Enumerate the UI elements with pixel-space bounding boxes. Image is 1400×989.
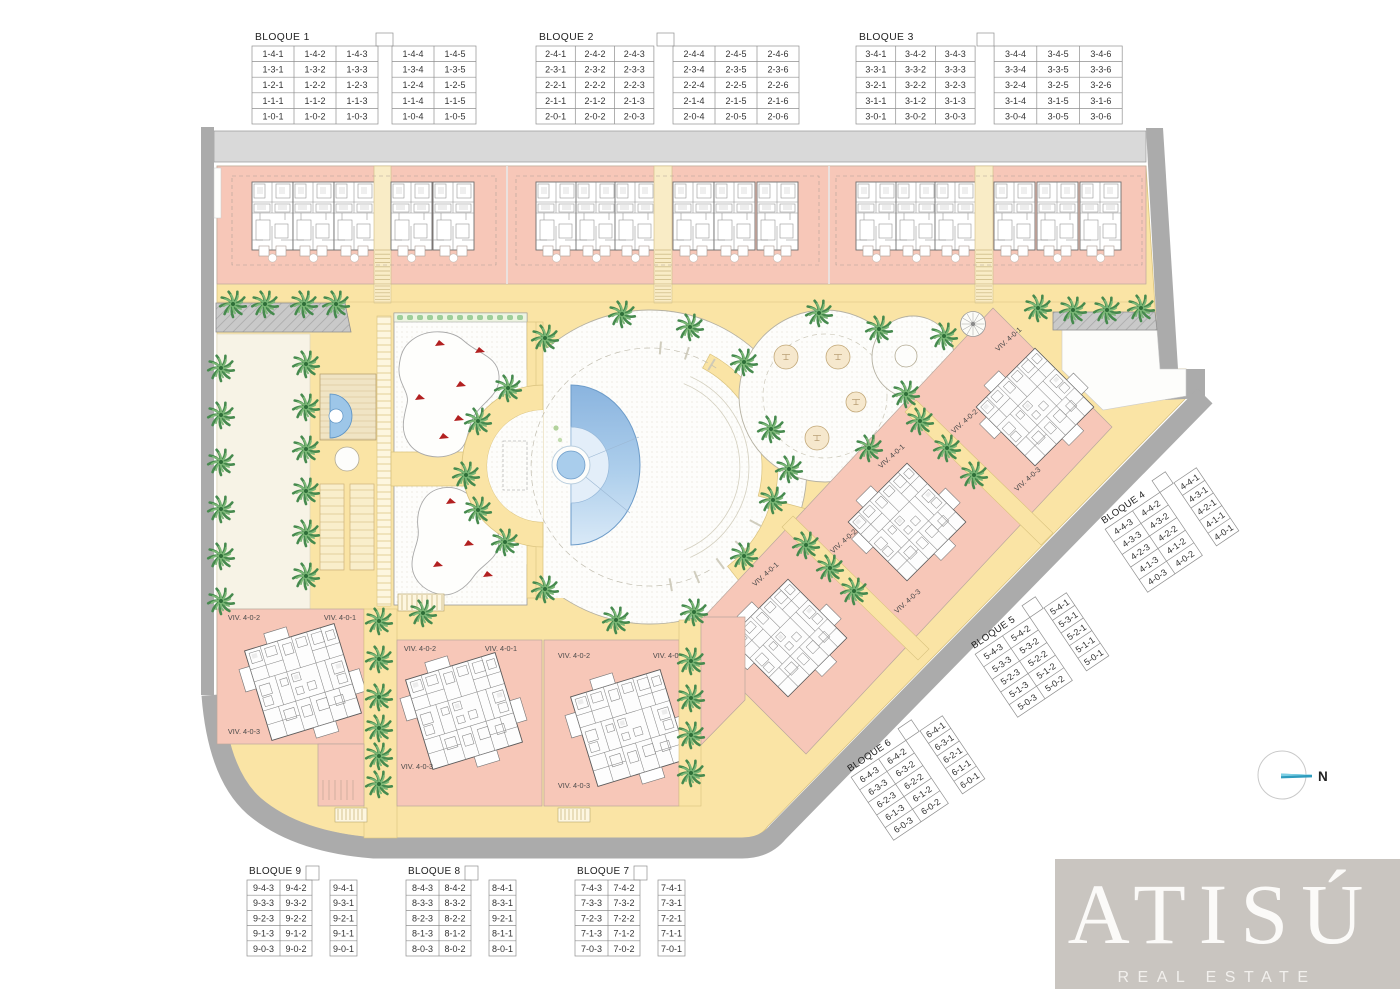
- svg-text:3-2-6: 3-2-6: [1090, 80, 1111, 90]
- svg-text:3-3-4: 3-3-4: [1005, 65, 1026, 75]
- svg-text:1-2-4: 1-2-4: [402, 80, 423, 90]
- svg-text:3-4-1: 3-4-1: [865, 49, 886, 59]
- svg-text:7-1-1: 7-1-1: [661, 929, 682, 939]
- svg-text:9-4-2: 9-4-2: [285, 883, 306, 893]
- svg-text:9-1-3: 9-1-3: [253, 929, 274, 939]
- svg-text:7-2-1: 7-2-1: [661, 913, 682, 923]
- svg-text:N: N: [1318, 769, 1328, 784]
- svg-text:1-2-3: 1-2-3: [346, 80, 367, 90]
- svg-text:9-4-3: 9-4-3: [253, 883, 274, 893]
- svg-text:3-4-2: 3-4-2: [905, 49, 926, 59]
- svg-text:8-3-1: 8-3-1: [492, 898, 513, 908]
- svg-text:VIV. 4-0-3: VIV. 4-0-3: [558, 781, 590, 790]
- svg-text:2-0-1: 2-0-1: [545, 111, 566, 121]
- svg-text:7-3-1: 7-3-1: [661, 898, 682, 908]
- svg-text:1-3-2: 1-3-2: [304, 65, 325, 75]
- svg-text:2-4-2: 2-4-2: [584, 49, 605, 59]
- svg-text:8-0-3: 8-0-3: [412, 944, 433, 954]
- svg-text:REAL ESTATE: REAL ESTATE: [1117, 969, 1316, 986]
- svg-text:1-0-2: 1-0-2: [304, 111, 325, 121]
- svg-text:BLOQUE 8: BLOQUE 8: [408, 866, 461, 877]
- svg-text:3-1-6: 3-1-6: [1090, 96, 1111, 106]
- svg-text:1-1-4: 1-1-4: [402, 96, 423, 106]
- svg-text:7-3-3: 7-3-3: [581, 898, 602, 908]
- svg-text:3-0-6: 3-0-6: [1090, 111, 1111, 121]
- svg-text:2-4-6: 2-4-6: [767, 49, 788, 59]
- svg-text:3-3-3: 3-3-3: [945, 65, 966, 75]
- svg-text:1-1-5: 1-1-5: [444, 96, 465, 106]
- svg-text:9-0-2: 9-0-2: [285, 944, 306, 954]
- svg-text:3-4-4: 3-4-4: [1005, 49, 1026, 59]
- svg-text:9-1-1: 9-1-1: [333, 929, 354, 939]
- svg-text:3-2-5: 3-2-5: [1048, 80, 1069, 90]
- svg-text:9-3-3: 9-3-3: [253, 898, 274, 908]
- svg-text:1-2-5: 1-2-5: [444, 80, 465, 90]
- svg-text:1-3-5: 1-3-5: [444, 65, 465, 75]
- svg-text:BLOQUE 9: BLOQUE 9: [249, 866, 302, 877]
- svg-text:2-1-4: 2-1-4: [683, 96, 704, 106]
- svg-text:2-3-4: 2-3-4: [683, 65, 704, 75]
- svg-text:3-0-5: 3-0-5: [1048, 111, 1069, 121]
- svg-text:8-2-2: 8-2-2: [444, 913, 465, 923]
- svg-text:1-0-1: 1-0-1: [262, 111, 283, 121]
- svg-text:3-3-6: 3-3-6: [1090, 65, 1111, 75]
- svg-text:8-1-3: 8-1-3: [412, 929, 433, 939]
- svg-text:2-2-1: 2-2-1: [545, 80, 566, 90]
- svg-text:2-4-5: 2-4-5: [725, 49, 746, 59]
- svg-text:BLOQUE 3: BLOQUE 3: [859, 32, 914, 43]
- svg-text:2-1-6: 2-1-6: [767, 96, 788, 106]
- svg-text:7-1-3: 7-1-3: [581, 929, 602, 939]
- svg-text:BLOQUE 2: BLOQUE 2: [539, 32, 594, 43]
- svg-text:1-4-5: 1-4-5: [444, 49, 465, 59]
- svg-text:2-3-1: 2-3-1: [545, 65, 566, 75]
- svg-text:3-4-3: 3-4-3: [945, 49, 966, 59]
- svg-text:2-1-5: 2-1-5: [725, 96, 746, 106]
- svg-text:3-1-5: 3-1-5: [1048, 96, 1069, 106]
- svg-text:2-2-4: 2-2-4: [683, 80, 704, 90]
- svg-text:3-3-2: 3-3-2: [905, 65, 926, 75]
- svg-text:3-1-3: 3-1-3: [945, 96, 966, 106]
- svg-text:1-3-3: 1-3-3: [346, 65, 367, 75]
- svg-text:3-0-1: 3-0-1: [865, 111, 886, 121]
- svg-text:8-1-1: 8-1-1: [492, 929, 513, 939]
- svg-text:2-3-6: 2-3-6: [767, 65, 788, 75]
- svg-text:7-0-2: 7-0-2: [613, 944, 634, 954]
- svg-text:3-4-5: 3-4-5: [1048, 49, 1069, 59]
- svg-text:BLOQUE 7: BLOQUE 7: [577, 866, 630, 877]
- svg-text:2-3-3: 2-3-3: [624, 65, 645, 75]
- svg-text:2-0-4: 2-0-4: [683, 111, 704, 121]
- svg-text:9-3-1: 9-3-1: [333, 898, 354, 908]
- svg-text:VIV. 4-0-1: VIV. 4-0-1: [324, 613, 356, 622]
- svg-text:8-3-3: 8-3-3: [412, 898, 433, 908]
- svg-text:9-2-3: 9-2-3: [253, 913, 274, 923]
- svg-text:3-2-2: 3-2-2: [905, 80, 926, 90]
- svg-text:VIV. 4-0-2: VIV. 4-0-2: [228, 613, 260, 622]
- svg-text:2-2-5: 2-2-5: [725, 80, 746, 90]
- svg-text:2-0-3: 2-0-3: [624, 111, 645, 121]
- svg-text:9-4-1: 9-4-1: [333, 883, 354, 893]
- svg-text:3-2-4: 3-2-4: [1005, 80, 1026, 90]
- svg-text:3-3-5: 3-3-5: [1048, 65, 1069, 75]
- svg-text:1-0-3: 1-0-3: [346, 111, 367, 121]
- svg-text:9-0-1: 9-0-1: [333, 944, 354, 954]
- svg-text:3-4-6: 3-4-6: [1090, 49, 1111, 59]
- svg-text:ATISÚ: ATISÚ: [1068, 866, 1377, 962]
- svg-text:2-2-2: 2-2-2: [584, 80, 605, 90]
- svg-text:3-0-2: 3-0-2: [905, 111, 926, 121]
- svg-text:8-4-2: 8-4-2: [444, 883, 465, 893]
- svg-text:7-2-2: 7-2-2: [613, 913, 634, 923]
- svg-text:1-1-3: 1-1-3: [346, 96, 367, 106]
- svg-text:8-0-2: 8-0-2: [444, 944, 465, 954]
- svg-text:9-2-2: 9-2-2: [285, 913, 306, 923]
- svg-text:3-0-4: 3-0-4: [1005, 111, 1026, 121]
- svg-text:3-1-1: 3-1-1: [865, 96, 886, 106]
- svg-text:BLOQUE 1: BLOQUE 1: [255, 32, 310, 43]
- svg-text:2-0-2: 2-0-2: [584, 111, 605, 121]
- svg-text:1-4-4: 1-4-4: [402, 49, 423, 59]
- svg-text:8-3-2: 8-3-2: [444, 898, 465, 908]
- svg-text:3-1-4: 3-1-4: [1005, 96, 1026, 106]
- svg-text:3-1-2: 3-1-2: [905, 96, 926, 106]
- svg-text:8-0-1: 8-0-1: [492, 944, 513, 954]
- svg-text:7-0-1: 7-0-1: [661, 944, 682, 954]
- svg-text:3-2-1: 3-2-1: [865, 80, 886, 90]
- svg-text:9-2-1: 9-2-1: [492, 913, 513, 923]
- svg-text:2-1-1: 2-1-1: [545, 96, 566, 106]
- svg-text:7-4-3: 7-4-3: [581, 883, 602, 893]
- svg-text:2-4-3: 2-4-3: [624, 49, 645, 59]
- svg-text:9-0-3: 9-0-3: [253, 944, 274, 954]
- svg-text:2-3-2: 2-3-2: [584, 65, 605, 75]
- svg-text:2-3-5: 2-3-5: [725, 65, 746, 75]
- svg-text:1-2-2: 1-2-2: [304, 80, 325, 90]
- svg-text:2-4-4: 2-4-4: [683, 49, 704, 59]
- svg-text:7-2-3: 7-2-3: [581, 913, 602, 923]
- svg-text:VIV. 4-0-3: VIV. 4-0-3: [228, 727, 260, 736]
- svg-text:8-4-3: 8-4-3: [412, 883, 433, 893]
- svg-text:2-0-6: 2-0-6: [767, 111, 788, 121]
- svg-text:7-3-2: 7-3-2: [613, 898, 634, 908]
- svg-text:2-2-6: 2-2-6: [767, 80, 788, 90]
- svg-text:3-3-1: 3-3-1: [865, 65, 886, 75]
- svg-text:8-2-3: 8-2-3: [412, 913, 433, 923]
- svg-text:1-3-4: 1-3-4: [402, 65, 423, 75]
- svg-text:1-2-1: 1-2-1: [262, 80, 283, 90]
- svg-text:1-4-1: 1-4-1: [262, 49, 283, 59]
- svg-text:3-0-3: 3-0-3: [945, 111, 966, 121]
- svg-text:7-0-3: 7-0-3: [581, 944, 602, 954]
- svg-text:1-4-2: 1-4-2: [304, 49, 325, 59]
- svg-text:1-1-1: 1-1-1: [262, 96, 283, 106]
- svg-text:8-4-1: 8-4-1: [492, 883, 513, 893]
- svg-text:9-1-2: 9-1-2: [285, 929, 306, 939]
- svg-text:1-3-1: 1-3-1: [262, 65, 283, 75]
- svg-text:7-4-2: 7-4-2: [613, 883, 634, 893]
- svg-text:9-2-1: 9-2-1: [333, 913, 354, 923]
- svg-text:7-1-2: 7-1-2: [613, 929, 634, 939]
- svg-text:3-2-3: 3-2-3: [945, 80, 966, 90]
- svg-text:9-3-2: 9-3-2: [285, 898, 306, 908]
- svg-text:8-1-2: 8-1-2: [444, 929, 465, 939]
- svg-text:VIV. 4-0-2: VIV. 4-0-2: [558, 651, 590, 660]
- svg-text:VIV. 4-0-2: VIV. 4-0-2: [404, 644, 436, 653]
- svg-text:7-4-1: 7-4-1: [661, 883, 682, 893]
- svg-text:2-2-3: 2-2-3: [624, 80, 645, 90]
- svg-text:1-4-3: 1-4-3: [346, 49, 367, 59]
- svg-text:VIV. 4-0-1: VIV. 4-0-1: [485, 644, 517, 653]
- svg-text:2-0-5: 2-0-5: [725, 111, 746, 121]
- svg-text:VIV. 4-0-3: VIV. 4-0-3: [401, 762, 433, 771]
- svg-text:1-1-2: 1-1-2: [304, 96, 325, 106]
- svg-text:2-1-3: 2-1-3: [624, 96, 645, 106]
- svg-text:1-0-5: 1-0-5: [444, 111, 465, 121]
- svg-text:2-1-2: 2-1-2: [584, 96, 605, 106]
- svg-text:1-0-4: 1-0-4: [402, 111, 423, 121]
- svg-text:2-4-1: 2-4-1: [545, 49, 566, 59]
